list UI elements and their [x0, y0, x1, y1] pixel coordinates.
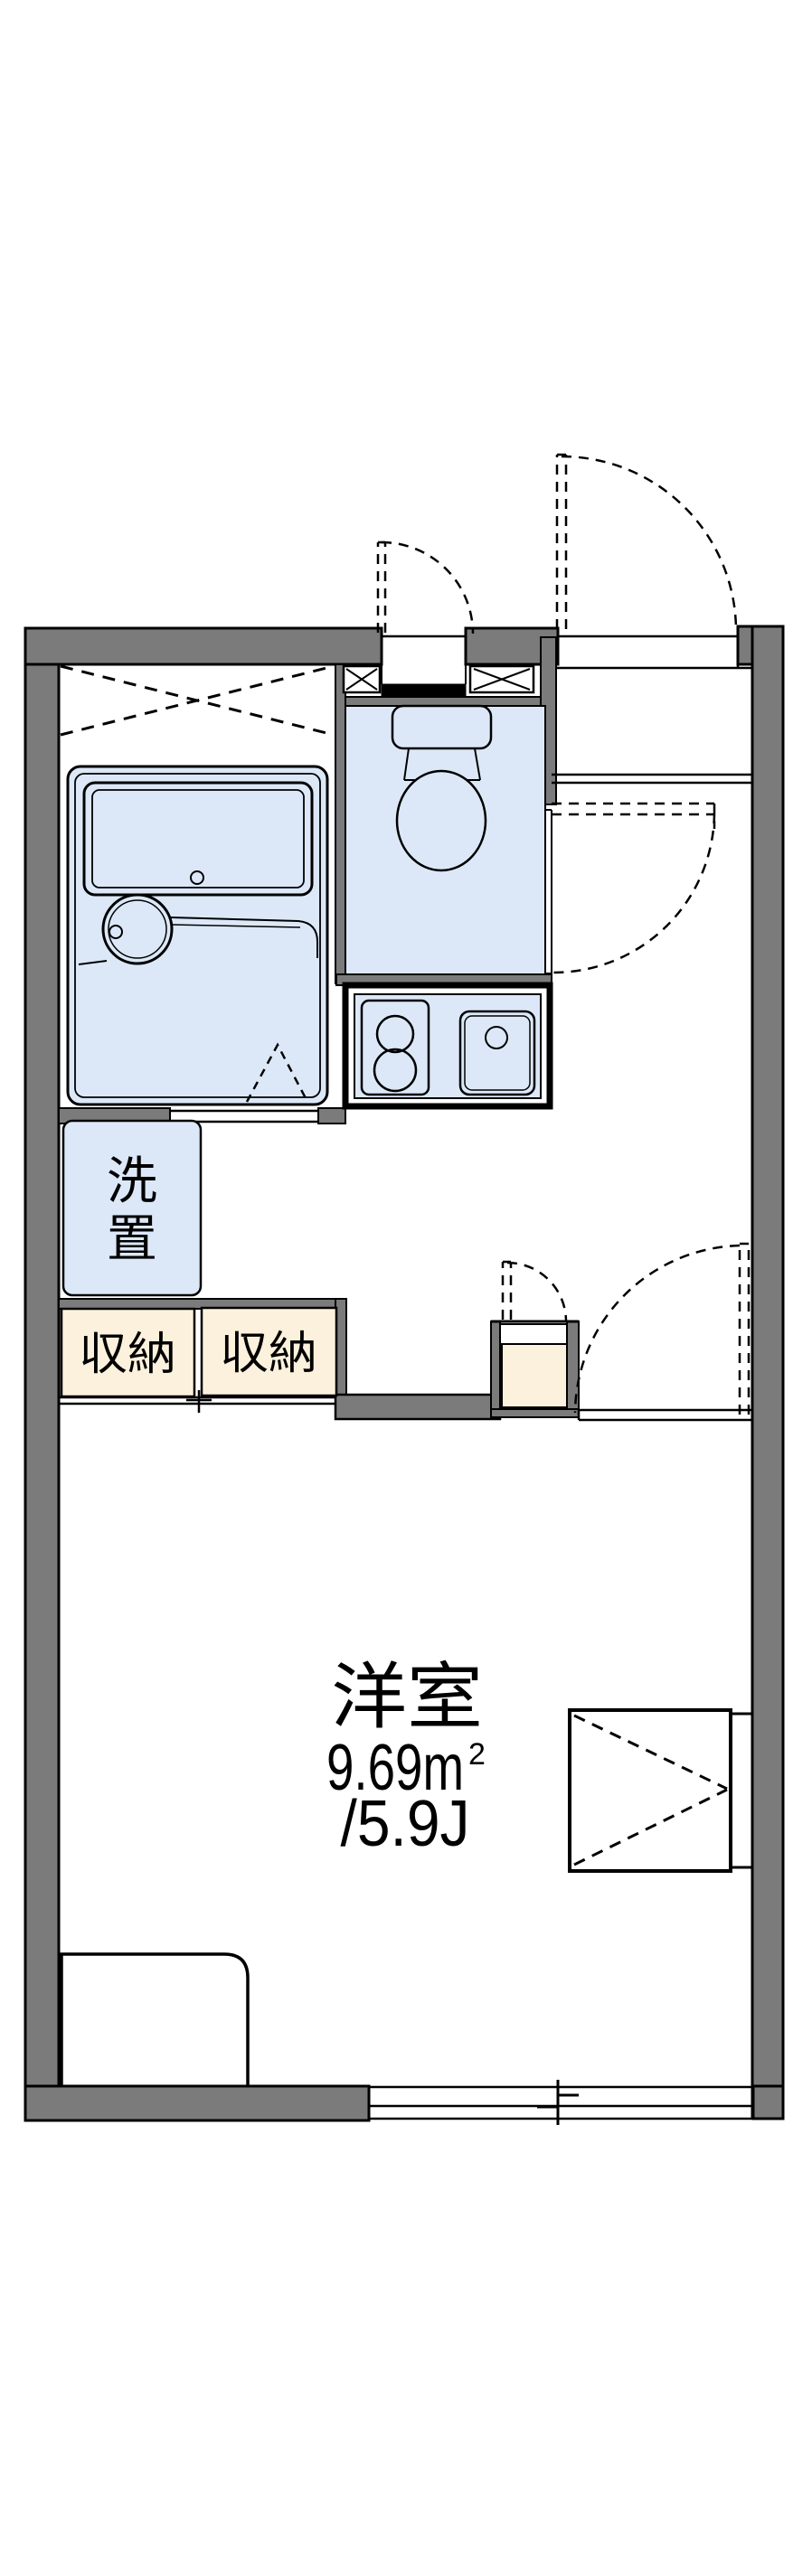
- bathroom: [61, 666, 334, 1122]
- toilet-door-leaf: [552, 804, 714, 829]
- laundry-label-bottom: 置: [107, 1210, 157, 1267]
- wall-bath-toilet-divider: [335, 664, 345, 983]
- closet-left-label: 収納: [79, 1329, 176, 1379]
- utility-door-leaf: [503, 1262, 511, 1320]
- niche-sill: [382, 684, 466, 696]
- room-tatami: /5.9J: [341, 1788, 470, 1860]
- wall-utility-left: [491, 1321, 500, 1417]
- utility-door-arc: [507, 1263, 566, 1321]
- room-door-leaf: [740, 1244, 749, 1415]
- wall-cabinet: [570, 1710, 753, 1871]
- toilet-door-arc: [552, 813, 714, 973]
- utility-box: [491, 1321, 579, 1407]
- entrance-door: [557, 455, 736, 631]
- niche-door: [378, 542, 473, 634]
- wall-right: [752, 626, 783, 2118]
- toilet-room: [345, 706, 552, 974]
- room-door: [575, 1244, 749, 1415]
- toilet-tank: [392, 706, 491, 748]
- niche-door-leaf: [378, 542, 385, 633]
- room-label: 洋室 9.69m 2 /5.9J: [326, 1657, 486, 1860]
- floor-plan: 洗 置 収納 収納: [0, 0, 812, 2576]
- bed-outline: [61, 1954, 248, 2085]
- toilet-door: [552, 804, 714, 973]
- wall-bottom-left: [25, 2086, 369, 2120]
- entrance-door-leaf: [557, 455, 566, 629]
- wall-toilet-top: [336, 697, 550, 706]
- closet-right-label: 収納: [220, 1328, 317, 1378]
- floor-plan-page: 洗 置 収納 収納: [0, 0, 812, 2576]
- niche-door-arc: [382, 542, 473, 634]
- room-name: 洋室: [331, 1657, 483, 1737]
- bathroom-ceiling-x: [61, 666, 334, 735]
- utility-inner: [502, 1344, 567, 1407]
- laundry-label-top: 洗: [107, 1152, 157, 1209]
- room-doorway-line-lower: [579, 1410, 752, 1420]
- kitchen: [345, 985, 550, 1106]
- toilet-doorway-jamb-outer: [545, 810, 552, 973]
- genkan: [552, 636, 752, 783]
- wall-utility-bottom: [491, 1409, 579, 1417]
- toilet-bowl: [397, 771, 486, 870]
- washbasin: [103, 895, 172, 964]
- wall-top-left: [25, 628, 382, 664]
- utility-door: [503, 1262, 566, 1321]
- main-room: 洋室 9.69m 2 /5.9J: [61, 1410, 753, 2125]
- wall-utility-right: [567, 1321, 579, 1417]
- wall-bottom-right-corner: [753, 2086, 783, 2119]
- wall-corridor-room: [335, 1395, 500, 1419]
- wall-cabinet-box: [570, 1710, 731, 1871]
- wall-kitchen-stub: [318, 1108, 345, 1123]
- south-window: [369, 2080, 753, 2125]
- room-door-arc: [575, 1246, 740, 1413]
- utility-white-strip: [500, 1324, 567, 1344]
- entrance-door-arc: [562, 456, 736, 631]
- wall-cabinet-connectors: [731, 1714, 753, 1867]
- window-jambs: [369, 2087, 753, 2119]
- laundry-area: 洗 置: [63, 1121, 201, 1295]
- wall-left: [25, 628, 59, 2120]
- room-area-superscript: 2: [468, 1737, 486, 1772]
